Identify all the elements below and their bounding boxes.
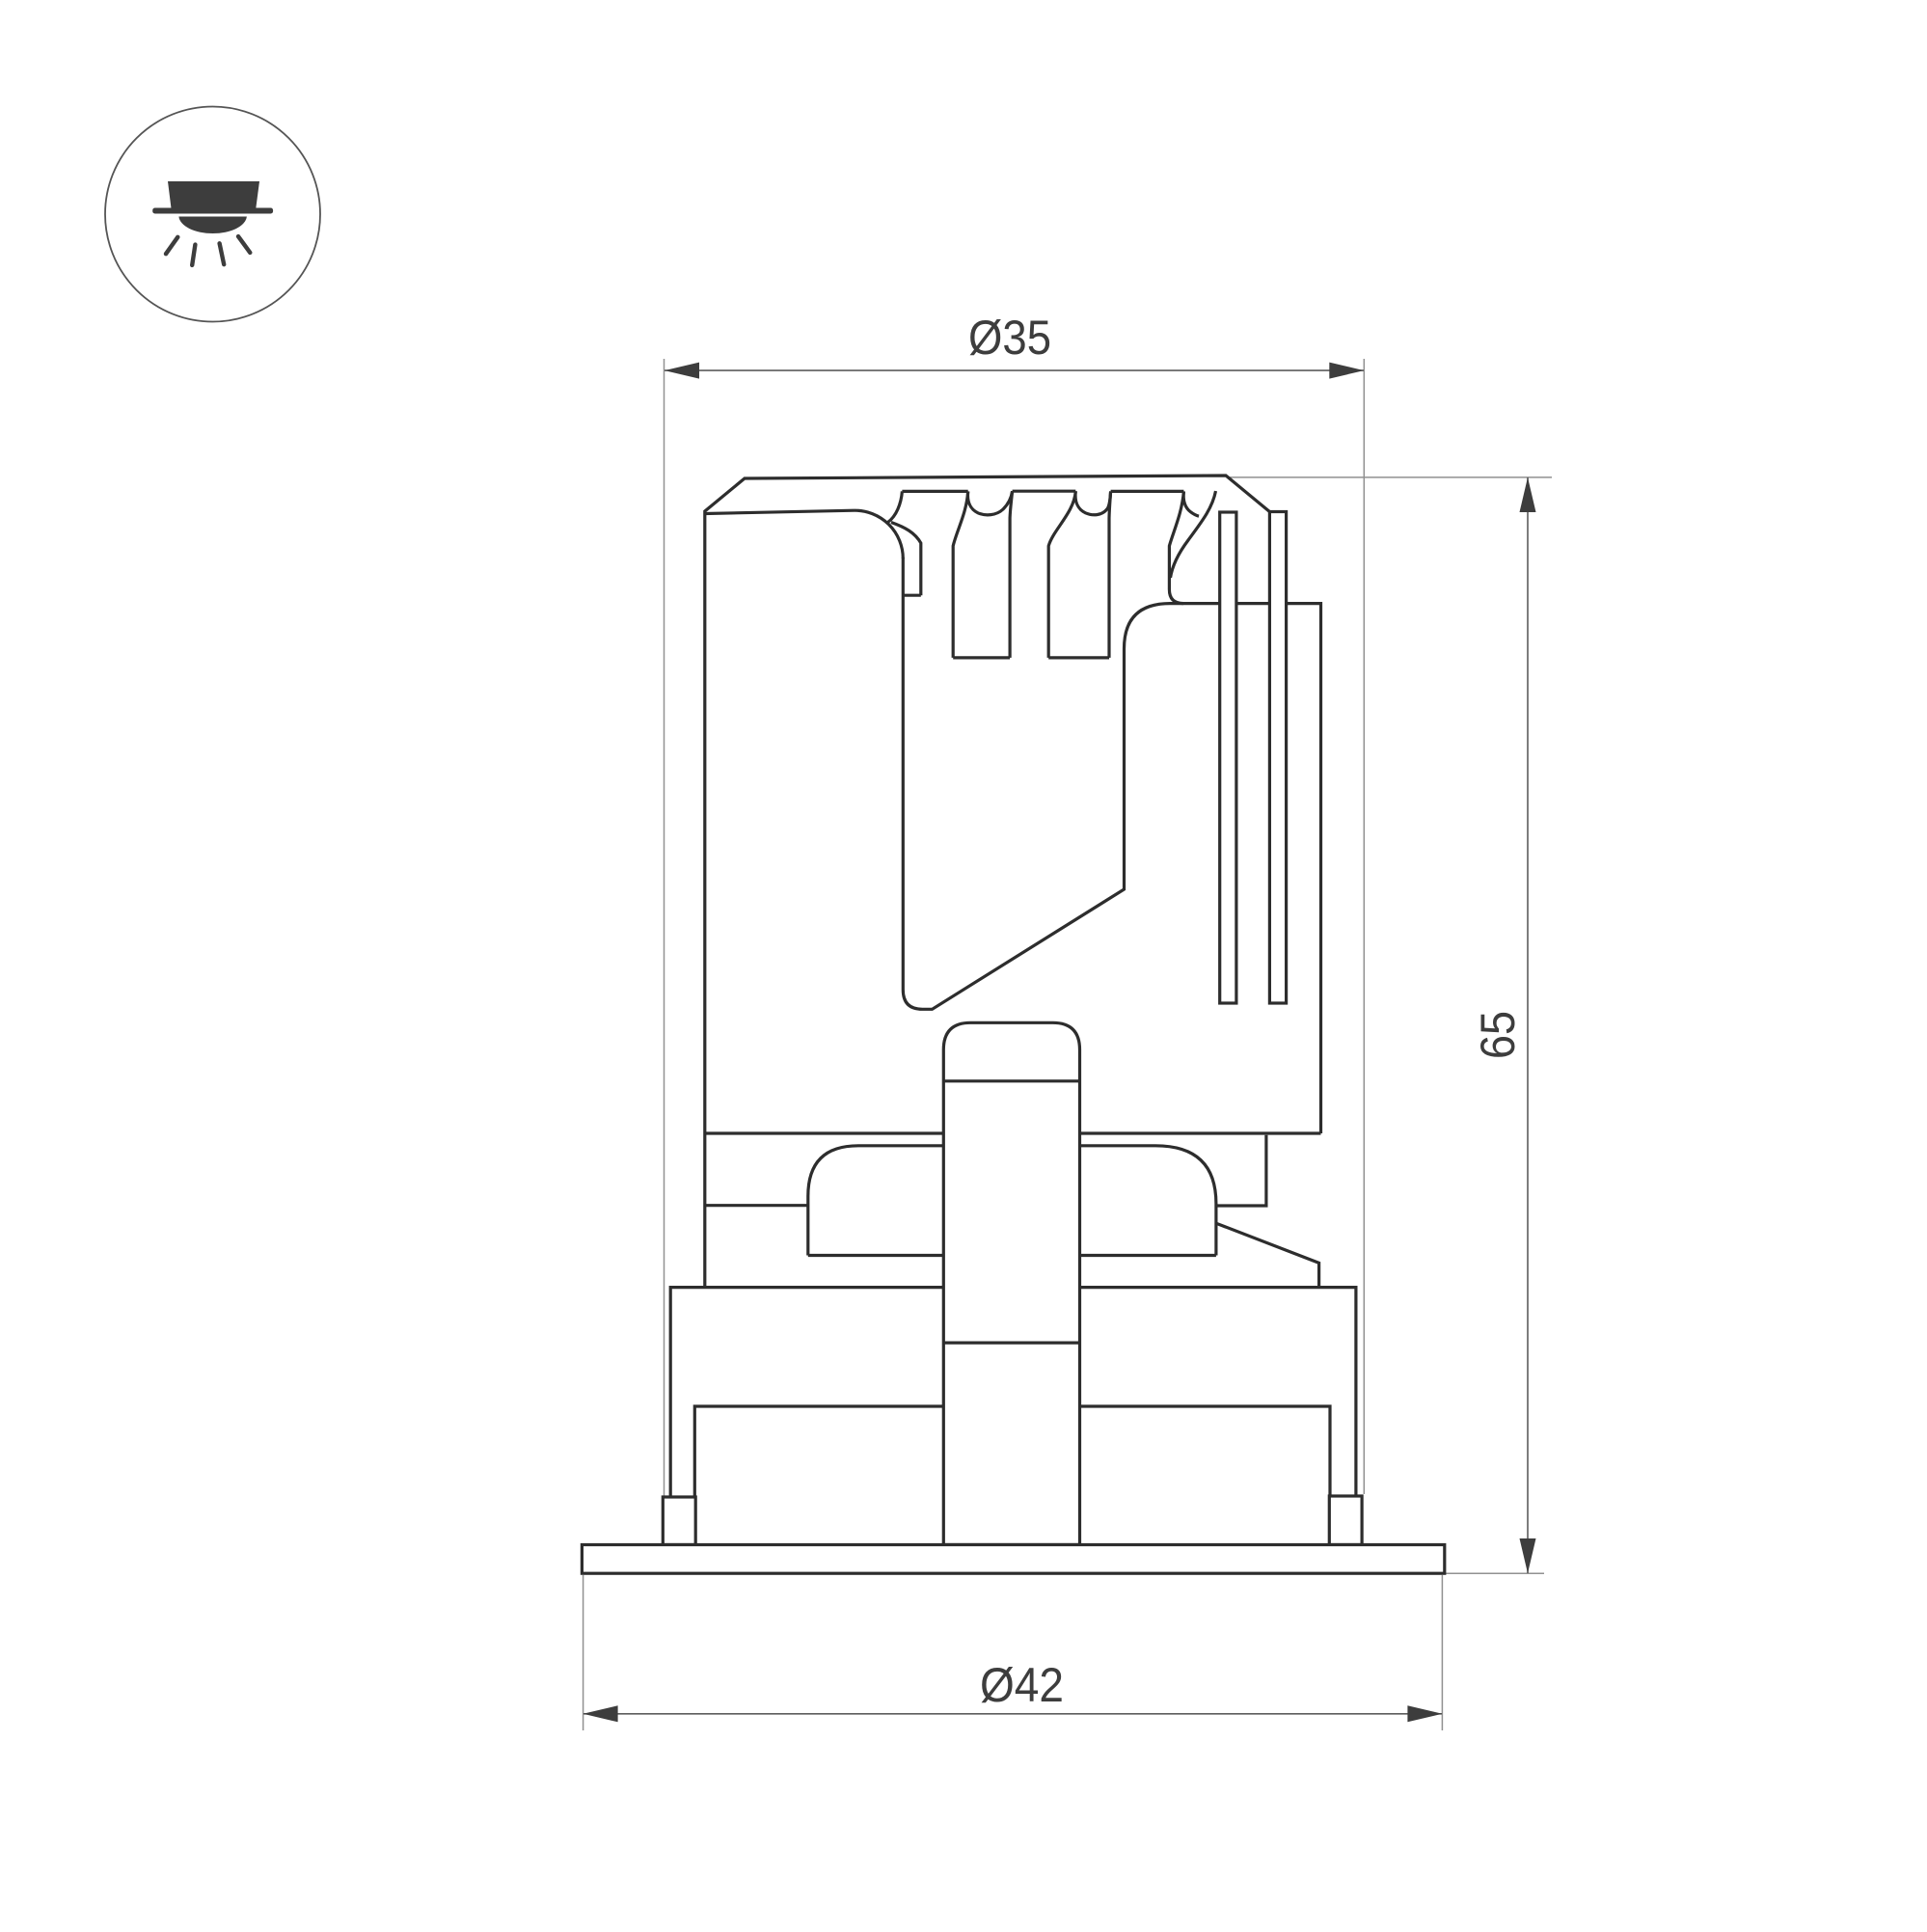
svg-text:Ø42: Ø42 xyxy=(980,1658,1064,1712)
svg-text:Ø35: Ø35 xyxy=(968,311,1051,365)
svg-text:65: 65 xyxy=(1471,1011,1525,1059)
